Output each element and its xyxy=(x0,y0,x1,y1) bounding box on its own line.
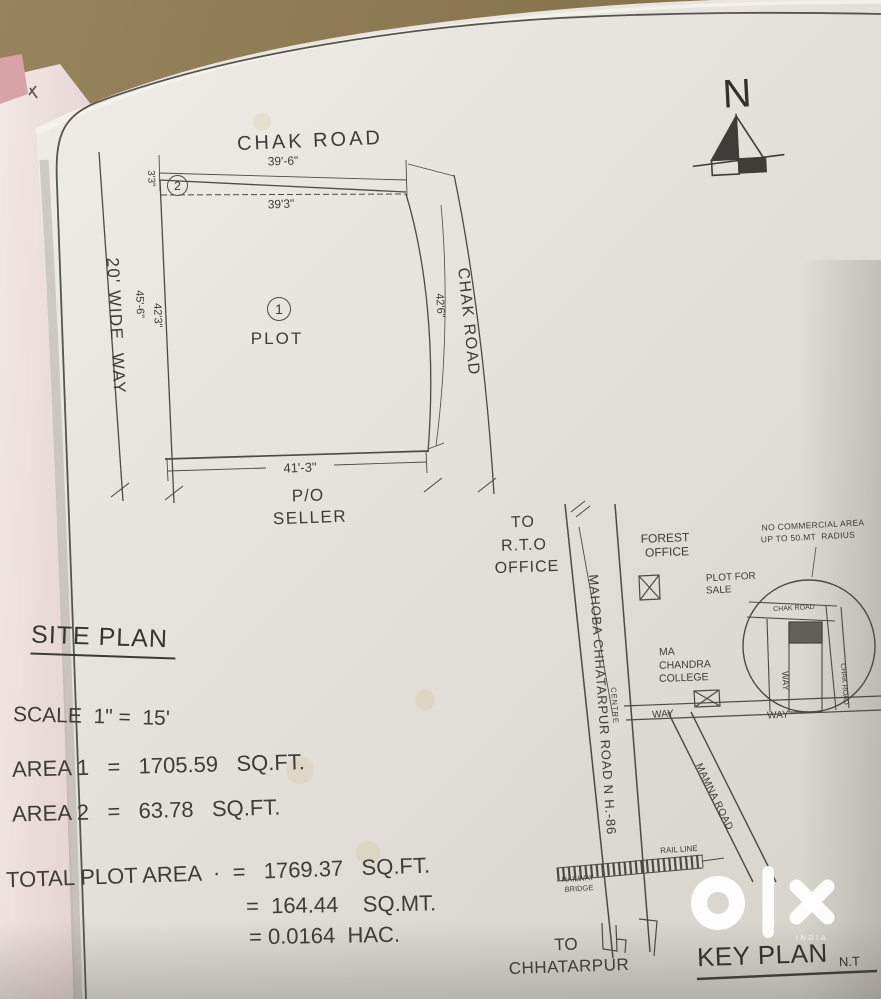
seller-label: SELLER xyxy=(273,508,348,528)
railway-bridge-line1: RAILWAY xyxy=(562,874,595,884)
way-left-label: WAY xyxy=(652,709,674,720)
to-rto-line1: TO xyxy=(511,515,535,532)
railway-bridge-line2: BRIDGE xyxy=(564,884,593,893)
total-sqmt-line: = 164.44 SQ.MT. xyxy=(246,892,437,917)
centre-label: CENTRE xyxy=(610,687,620,724)
scale-line: SCALE 1" = 15' xyxy=(13,704,170,729)
forest-office-line1: FOREST xyxy=(640,531,689,545)
olx-india-subtext: INDIA xyxy=(796,934,829,942)
dim-39-3-label: 39'3" xyxy=(268,198,295,211)
plot-for-sale-line2: SALE xyxy=(706,585,732,596)
dim-42-3-label: 42'3" xyxy=(151,303,163,328)
dim-39-6-label: 39'-6" xyxy=(268,154,299,167)
site-plan-line-art xyxy=(0,0,881,999)
dim-42-6-label: 42'6" xyxy=(433,293,446,318)
college-line1: MA xyxy=(659,647,675,658)
north-letter: N xyxy=(722,73,753,114)
way-mid-label: WAY xyxy=(767,710,789,721)
paper-sheet xyxy=(36,0,881,999)
photographed-site-plan-document: CHAK ROAD 39'-6" 2 3'3" 39'3" 20' WIDE W… xyxy=(0,0,881,999)
college-line3: COLLEGE xyxy=(659,672,709,684)
key-plan-title: KEY PLAN xyxy=(697,940,829,971)
dim-45-6-label: 45'-6" xyxy=(133,290,145,318)
to-chhatarpur-line2: CHHATARPUR xyxy=(508,956,629,977)
to-rto-line3: OFFICE xyxy=(494,559,559,577)
olx-letter-l xyxy=(763,866,775,938)
forest-office-line2: OFFICE xyxy=(645,545,689,559)
dim-3-3-label: 3'3" xyxy=(145,170,156,187)
to-chhatarpur-line1: TO xyxy=(554,936,578,954)
site-plan-title: SITE PLAN xyxy=(30,622,176,659)
area2-marker: 2 xyxy=(167,175,188,196)
po-label: P/O xyxy=(292,486,325,504)
total-hac-line: = 0.0164 HAC. xyxy=(249,924,400,949)
college-line2: CHANDRA xyxy=(659,659,711,671)
right-shadow xyxy=(800,260,881,999)
key-plan-nts: N.T xyxy=(839,955,860,969)
to-rto-line2: R.T.O xyxy=(501,537,547,555)
area1-marker: 1 xyxy=(267,297,291,321)
plot-word-label: PLOT xyxy=(251,330,303,347)
dim-41-3-label: 41'-3" xyxy=(283,460,317,474)
circle-way-label: WAY xyxy=(780,671,790,691)
